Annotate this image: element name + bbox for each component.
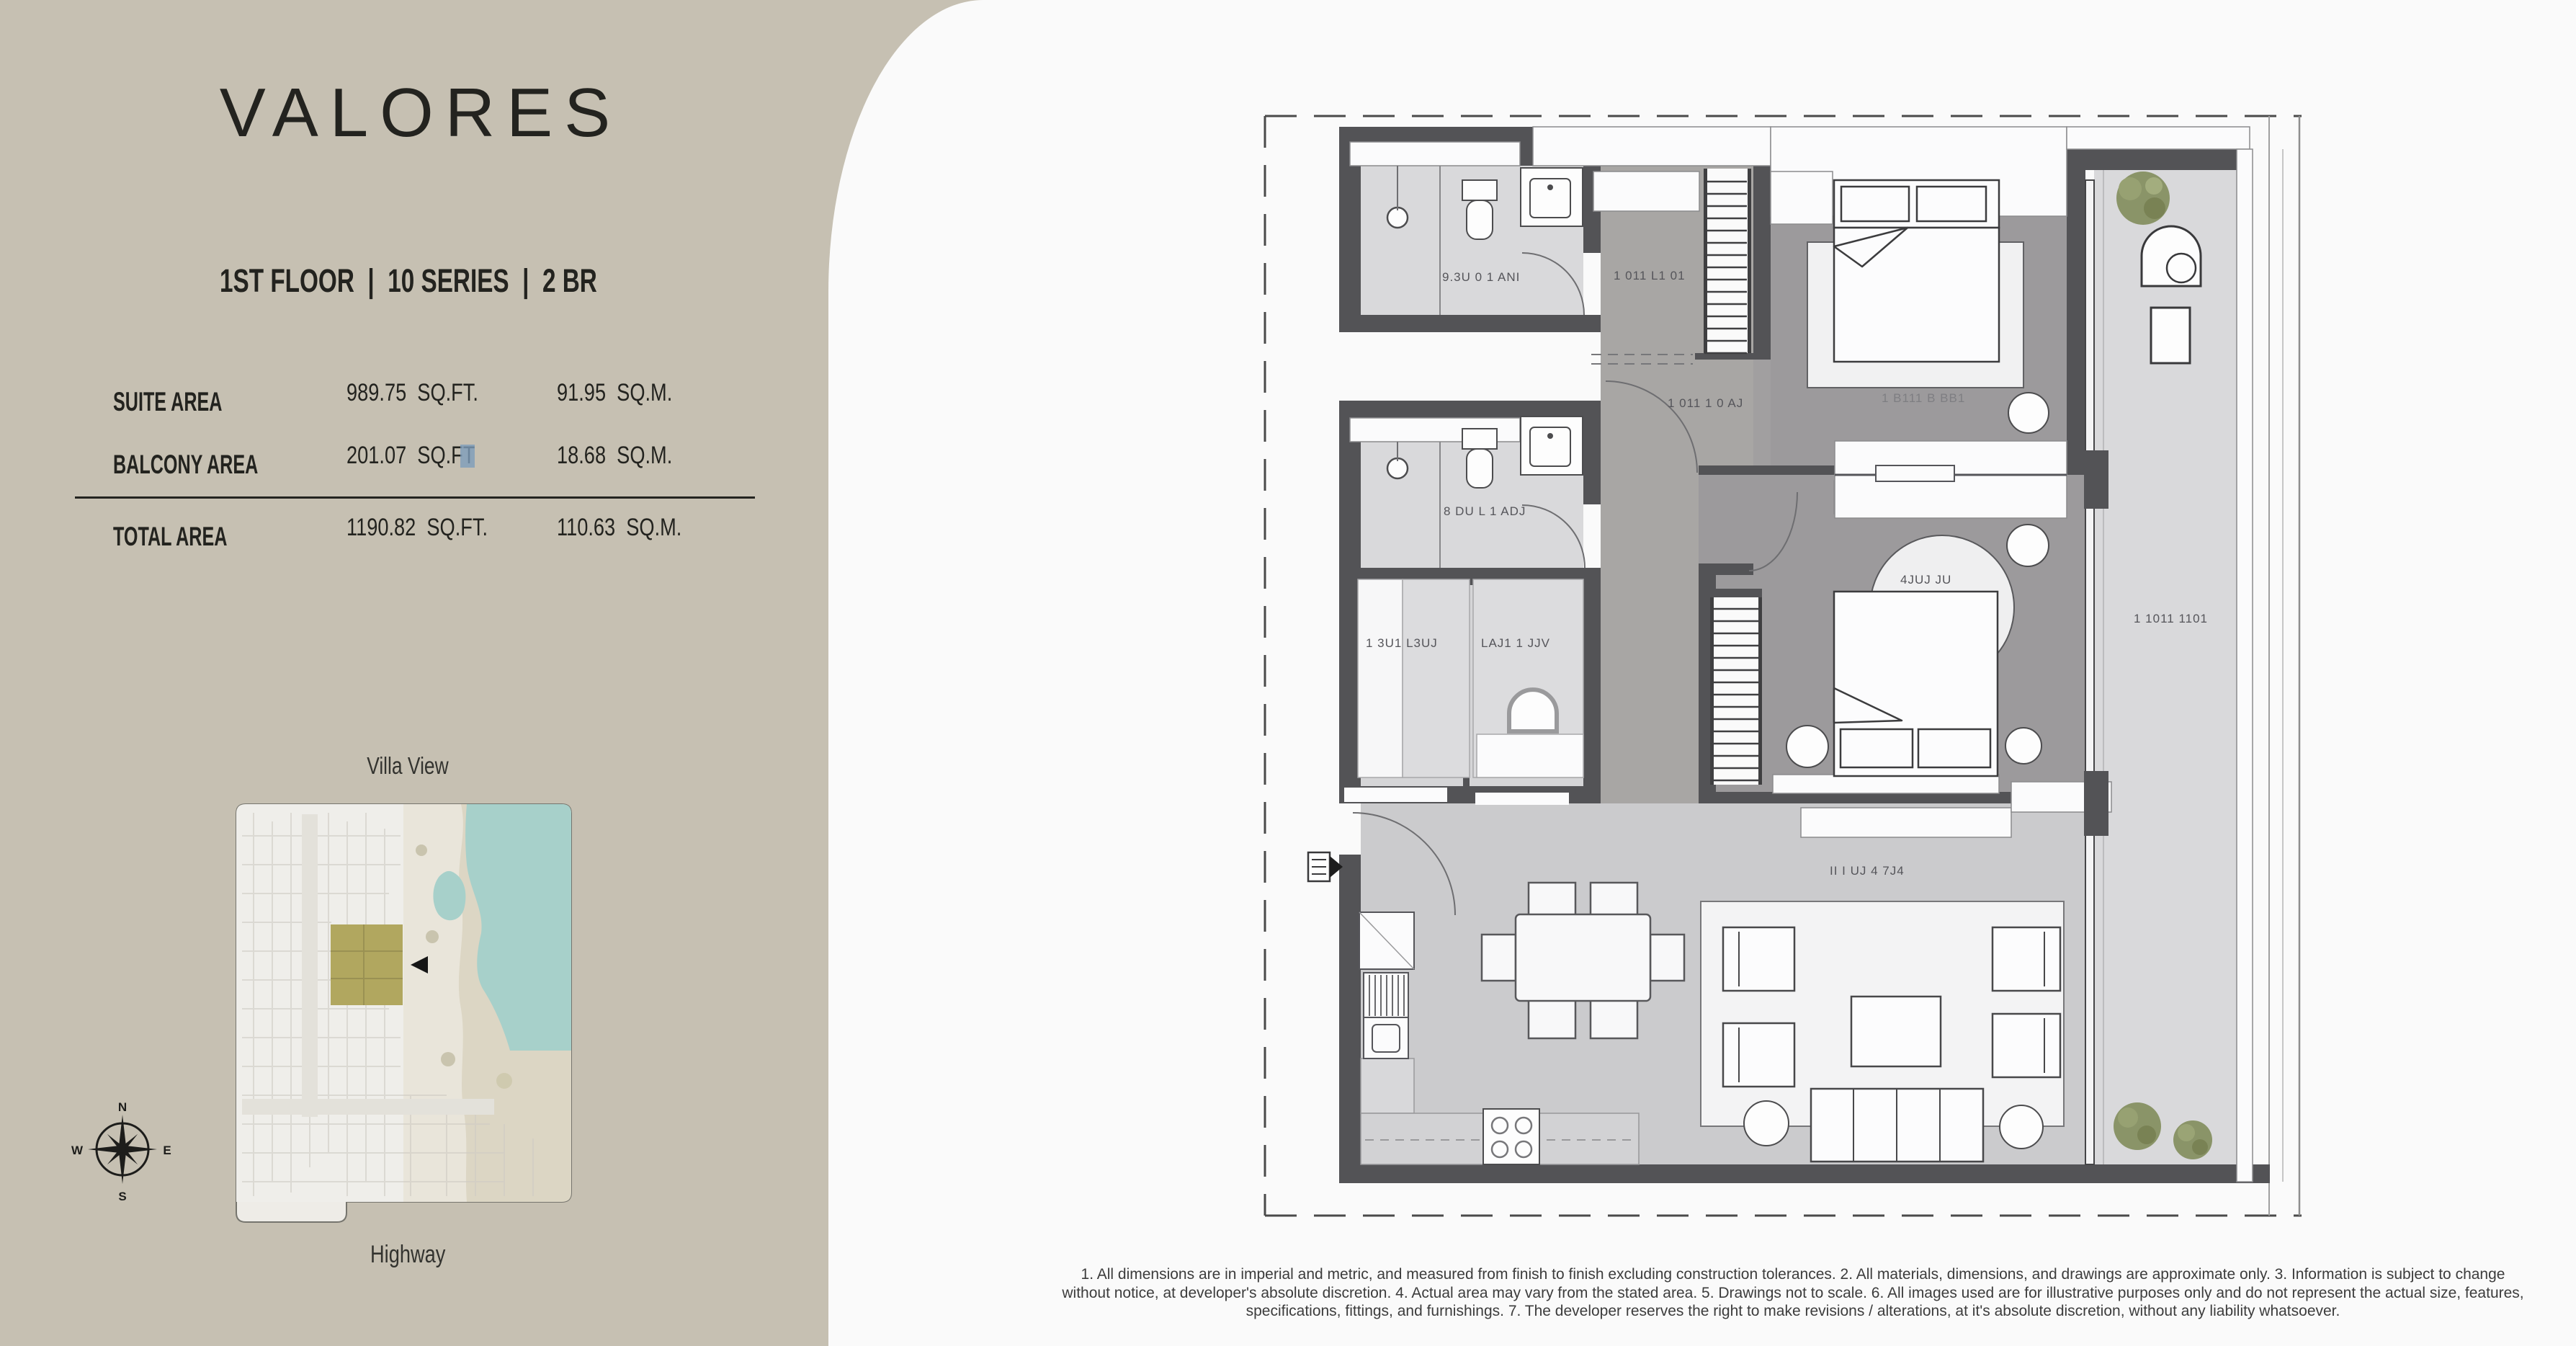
- svg-text:1 011 L1 01: 1 011 L1 01: [1614, 269, 1686, 282]
- svg-text:LAJ1 1 JJV: LAJ1 1 JJV: [1481, 636, 1550, 650]
- svg-text:8 DU L 1 ADJ: 8 DU L 1 ADJ: [1444, 504, 1526, 518]
- svg-text:9.3U 0 1 ANI: 9.3U 0 1 ANI: [1442, 270, 1520, 284]
- svg-text:1 1011 1101: 1 1011 1101: [2134, 612, 2208, 625]
- svg-text:1 B111 B BB1: 1 B111 B BB1: [1882, 391, 1965, 405]
- svg-text:4JUJ JU: 4JUJ JU: [1900, 573, 1951, 587]
- svg-text:W: W: [71, 1144, 84, 1157]
- svg-text:S: S: [118, 1190, 126, 1203]
- svg-text:II I UJ 4 7J4: II I UJ 4 7J4: [1830, 864, 1905, 878]
- svg-text:E: E: [163, 1144, 171, 1157]
- svg-text:1 3U1 L3UJ: 1 3U1 L3UJ: [1366, 636, 1438, 650]
- svg-text:N: N: [118, 1100, 127, 1114]
- svg-text:1 011 1 0 AJ: 1 011 1 0 AJ: [1668, 396, 1743, 410]
